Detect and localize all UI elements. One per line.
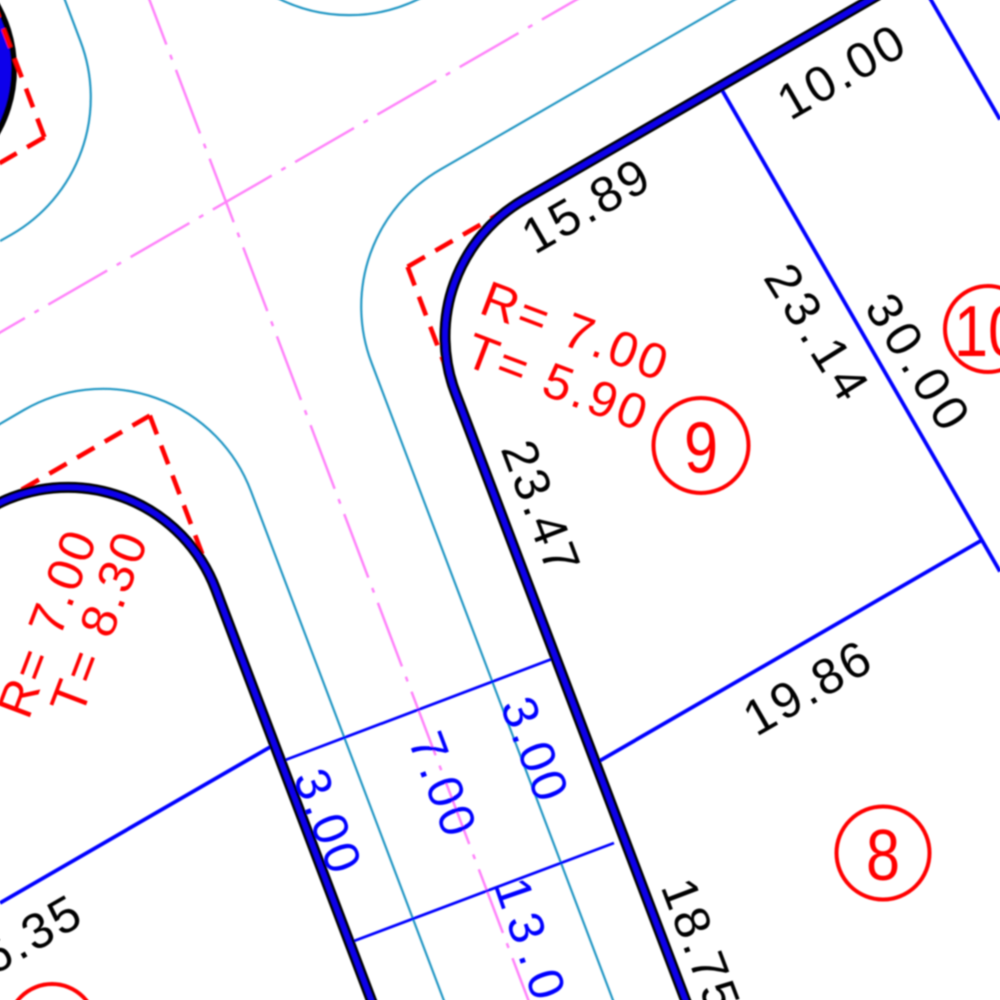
- svg-text:10: 10: [954, 293, 1000, 373]
- svg-text:8: 8: [866, 817, 900, 897]
- svg-text:9: 9: [684, 409, 718, 489]
